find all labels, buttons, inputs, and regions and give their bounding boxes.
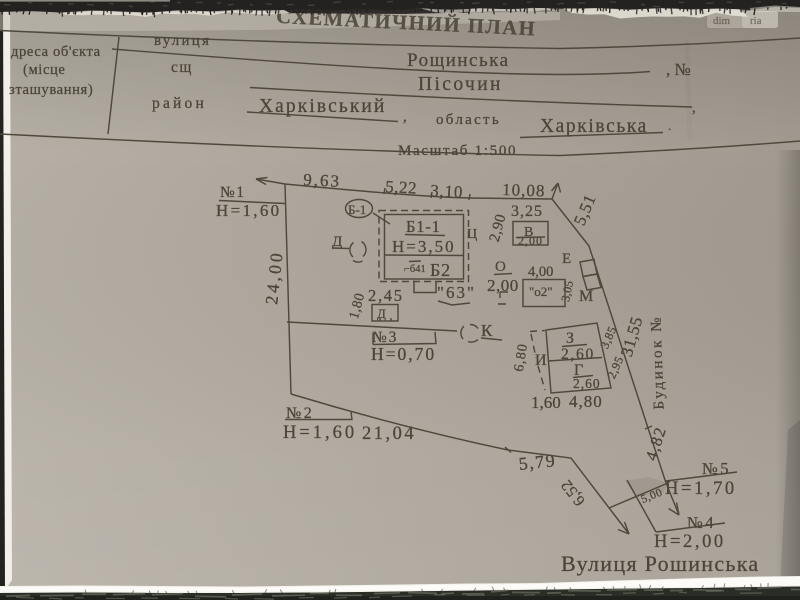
svg-text:10,08: 10,08 (502, 180, 546, 200)
svg-text:ria: ria (750, 15, 762, 27)
svg-text:Пісочин: Пісочин (418, 74, 503, 95)
svg-text:Н=2,00: Н=2,00 (654, 532, 726, 552)
svg-text:3,25: 3,25 (511, 203, 543, 220)
svg-text:Б1-1: Б1-1 (406, 217, 441, 236)
svg-text:К: К (481, 321, 493, 340)
svg-text:⌐б41: ⌐б41 (404, 264, 426, 275)
svg-text:Е: Е (562, 251, 571, 267)
svg-text:3,10: 3,10 (430, 181, 464, 202)
svg-text:Вулиця Рошинська: Вулиця Рошинська (561, 551, 759, 576)
svg-text:2,45: 2,45 (368, 286, 404, 305)
svg-text:№5: №5 (702, 459, 731, 478)
svg-text:Б2: Б2 (430, 260, 451, 280)
svg-text:№1: №1 (220, 184, 246, 201)
svg-text:1,60: 1,60 (531, 393, 561, 412)
svg-text:"63": "63" (437, 283, 476, 302)
svg-text:,: , (692, 100, 696, 116)
svg-text:М: М (579, 288, 593, 305)
svg-text:2,60: 2,60 (573, 376, 601, 391)
svg-text:4,80: 4,80 (569, 392, 603, 411)
svg-text:область: область (436, 112, 501, 128)
svg-text:Б-1: Б-1 (348, 202, 366, 217)
svg-text:Масштаб 1:500: Масштаб 1:500 (398, 143, 517, 159)
svg-text:№4: №4 (687, 513, 716, 532)
svg-text:район: район (152, 95, 207, 112)
svg-text:4,00: 4,00 (528, 264, 553, 280)
svg-text:21,04: 21,04 (362, 424, 416, 444)
svg-text:Будинок №: Будинок № (648, 315, 667, 410)
svg-text:2,00: 2,00 (518, 234, 543, 248)
svg-text:вулиця: вулиця (154, 33, 211, 49)
svg-text:"о2": "о2" (529, 284, 553, 299)
svg-text:,: , (403, 109, 407, 125)
svg-text:З: З (566, 330, 574, 347)
svg-text:Н=0,70: Н=0,70 (371, 344, 436, 364)
svg-text:Рощинська: Рощинська (407, 50, 510, 71)
svg-text:5,22: 5,22 (385, 177, 418, 198)
svg-text:.: . (668, 118, 671, 133)
svg-text:5,79: 5,79 (518, 450, 557, 474)
svg-text:О: О (495, 259, 506, 275)
svg-text:dim: dim (713, 15, 731, 27)
svg-text:Д: Д (377, 306, 386, 321)
svg-text:дреса об'єкта: дреса об'єкта (11, 44, 101, 60)
svg-text:Н=1,60: Н=1,60 (216, 201, 281, 220)
svg-text:2,60: 2,60 (561, 346, 595, 363)
svg-text:Н=3,50: Н=3,50 (392, 237, 456, 256)
svg-text:И: И (535, 352, 547, 369)
svg-text:Ц: Ц (467, 227, 477, 242)
svg-text:сщ: сщ (171, 59, 193, 76)
svg-text:зташування): зташування) (9, 82, 93, 98)
svg-text:9,63: 9,63 (303, 170, 342, 191)
svg-text:Н=1,70: Н=1,70 (665, 479, 737, 499)
svg-text:Н=1,60: Н=1,60 (283, 423, 357, 443)
svg-text:(місце: (місце (23, 62, 66, 78)
